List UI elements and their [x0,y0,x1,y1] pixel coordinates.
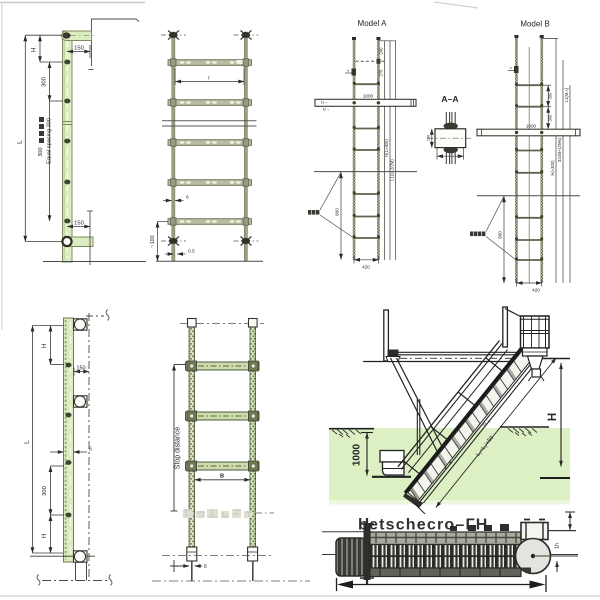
svg-text:300: 300 [548,92,553,100]
svg-text:H: H [42,344,48,348]
svg-text:6: 6 [186,195,189,201]
svg-text:B: B [220,474,224,480]
svg-text:1h: 1h [555,543,561,549]
svg-text:Equal spacing 300: Equal spacing 300 [47,118,53,164]
svg-text:Model A: Model A [358,19,388,28]
svg-text:150: 150 [74,221,84,227]
svg-text:L1(M.≈): L1(M.≈) [564,87,569,102]
svg-text:6: 6 [204,564,207,570]
svg-text:H: H [42,534,48,538]
svg-text:A–A: A–A [441,94,458,104]
svg-text:L: L [17,140,24,144]
svg-text:H(L≈300): H(L≈300) [384,139,389,157]
svg-text:1000: 1000 [526,124,537,129]
svg-text:t2→: t2→ [323,108,330,112]
svg-text:Stop distance: Stop distance [175,427,182,470]
svg-text:Model B: Model B [520,20,549,29]
svg-text:~100: ~100 [150,235,156,247]
svg-text:310/8+(25%): 310/8+(25%) [557,137,562,162]
svg-text:L: L [24,440,31,444]
svg-text:betschecro–ГH: betschecro–ГH [358,517,489,534]
svg-text:300: 300 [548,114,553,122]
svg-text:300: 300 [42,486,48,496]
svg-text:t1→: t1→ [321,101,328,105]
svg-text:L1(≤L2/2M): L1(≤L2/2M) [389,159,394,181]
svg-text:100: 100 [427,135,431,141]
svg-text:H: H [547,413,559,421]
svg-text:1000: 1000 [352,443,363,466]
svg-text:275: 275 [379,69,384,77]
svg-text:150: 150 [74,46,84,52]
svg-text:420: 420 [532,288,540,293]
svg-text:1000: 1000 [363,94,374,99]
svg-text:300: 300 [42,77,48,87]
svg-text:H: H [32,48,38,52]
svg-text:800: 800 [497,231,502,239]
svg-text:6: 6 [89,447,92,453]
svg-text:420: 420 [362,265,370,270]
svg-text:150: 150 [76,366,85,372]
svg-text:H(≈300): H(≈300) [550,160,555,176]
svg-text:0.5: 0.5 [188,249,195,255]
svg-text:300: 300 [38,147,44,156]
svg-text:800: 800 [334,208,339,216]
svg-text:240: 240 [379,47,384,55]
